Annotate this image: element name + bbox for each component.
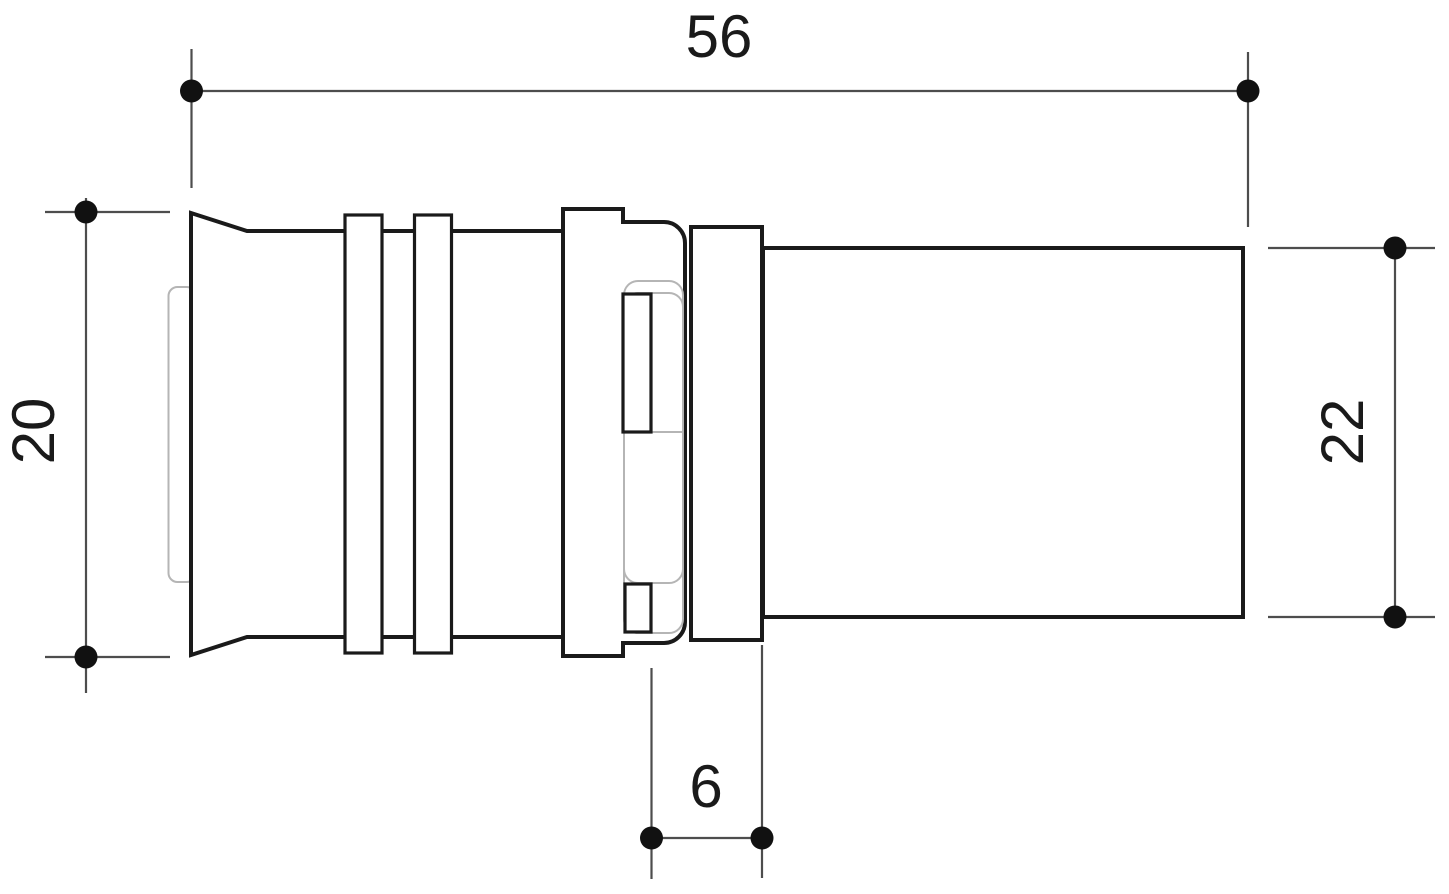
dimension-right-diameter: 22 — [1268, 237, 1435, 629]
inspection-window-top — [623, 294, 651, 432]
dimension-endpoint-dot — [640, 827, 663, 850]
press-fitting-dimension-drawing: 56 20 22 6 — [0, 0, 1449, 894]
technical-drawing-canvas: 56 20 22 6 — [0, 0, 1449, 894]
dimension-endpoint-dot — [75, 201, 98, 224]
dimension-endpoint-dot — [75, 646, 98, 669]
pipe-end-outline — [763, 248, 1243, 617]
dimension-left-diameter: 20 — [0, 198, 170, 693]
dimension-endpoint-dot — [180, 80, 203, 103]
dimension-overall-length: 56 — [180, 3, 1260, 227]
crimp-rib-left — [345, 215, 382, 653]
dimension-label-right-diameter: 22 — [1309, 399, 1376, 466]
inspection-window-bottom — [625, 584, 651, 632]
dimension-collar-width: 6 — [640, 645, 774, 879]
dimension-label-overall-length: 56 — [686, 3, 753, 70]
dimension-endpoint-dot — [751, 827, 774, 850]
crimp-rib-right — [415, 215, 452, 653]
dimension-endpoint-dot — [1384, 606, 1407, 629]
dimension-label-left-diameter: 20 — [0, 398, 67, 465]
dimension-label-collar-width: 6 — [689, 753, 722, 820]
dimension-endpoint-dot — [1384, 237, 1407, 260]
collar-ring-outline — [691, 227, 762, 640]
dimension-endpoint-dot — [1237, 80, 1260, 103]
